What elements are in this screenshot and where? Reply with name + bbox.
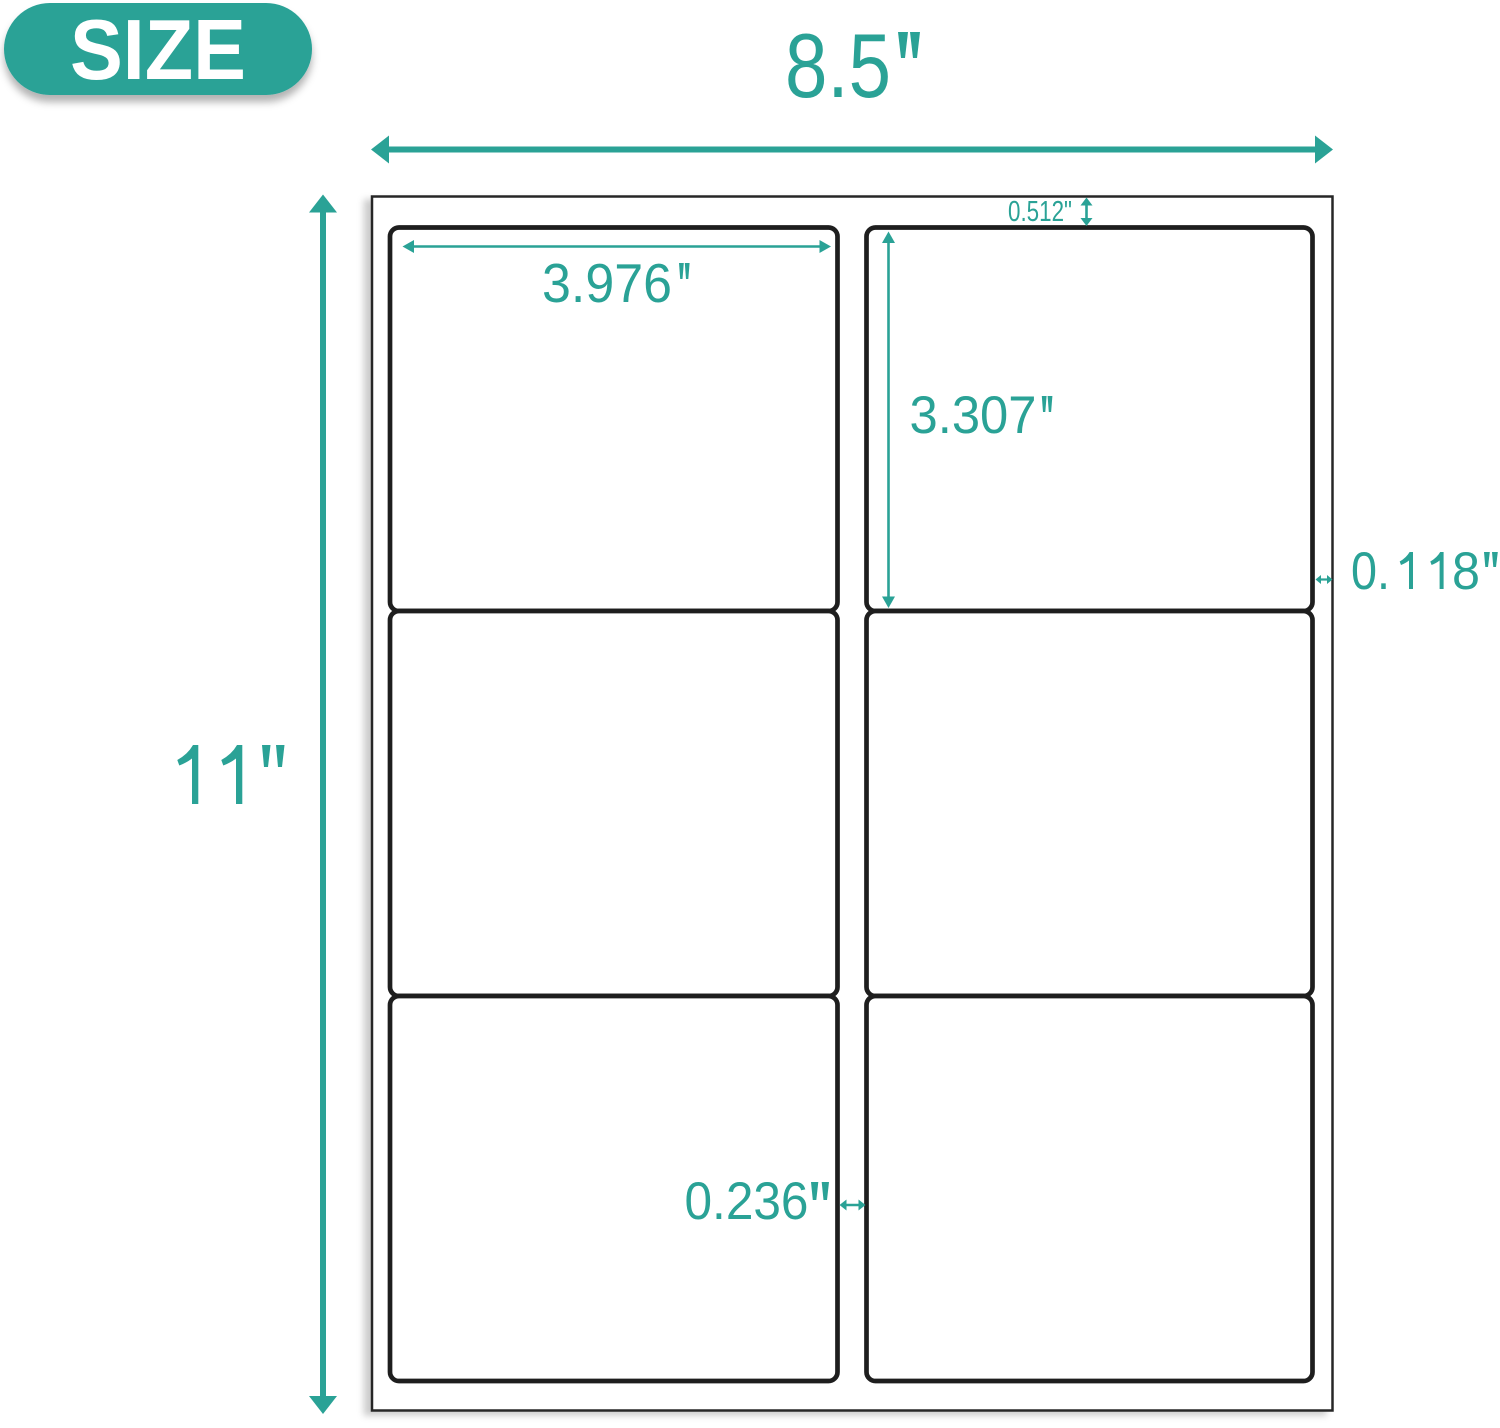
svg-text:0.: 0.	[1351, 542, 1390, 601]
svg-text:SIZE: SIZE	[70, 3, 246, 98]
svg-text:3.976: 3.976	[542, 252, 672, 314]
svg-text:3.307: 3.307	[910, 386, 1037, 445]
svg-text:0.512": 0.512"	[1008, 196, 1072, 228]
svg-text:8.5: 8.5	[785, 16, 891, 117]
svg-text:8: 8	[1452, 542, 1480, 601]
svg-text:0.236: 0.236	[685, 1172, 809, 1231]
